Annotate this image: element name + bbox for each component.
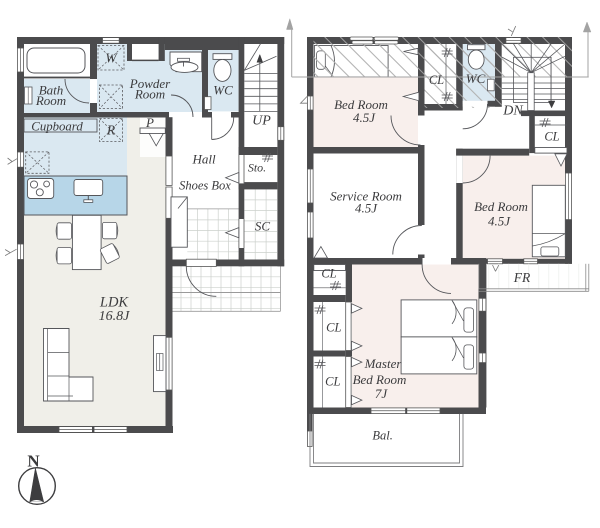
svg-text:Master: Master — [364, 356, 403, 371]
svg-text:P: P — [145, 115, 154, 130]
svg-text:UP: UP — [252, 114, 271, 129]
svg-text:Room: Room — [134, 87, 165, 102]
svg-text:Cupboard: Cupboard — [31, 120, 83, 134]
svg-text:CL: CL — [429, 73, 444, 87]
svg-text:WC: WC — [466, 71, 486, 86]
svg-text:CL: CL — [544, 130, 559, 144]
svg-text:Sto.: Sto. — [248, 161, 266, 175]
svg-text:7J: 7J — [375, 386, 389, 401]
svg-text:Bed Room: Bed Room — [474, 199, 528, 214]
svg-text:4.5J: 4.5J — [353, 110, 376, 125]
svg-text:CL: CL — [321, 267, 336, 281]
svg-text:W: W — [105, 50, 118, 65]
svg-text:4.5J: 4.5J — [488, 214, 511, 229]
svg-text:Shoes Box: Shoes Box — [179, 179, 231, 193]
svg-text:4.5J: 4.5J — [355, 201, 378, 216]
svg-text:16.8J: 16.8J — [99, 309, 131, 324]
svg-text:CL: CL — [325, 375, 340, 389]
svg-text:Hall: Hall — [191, 152, 216, 167]
svg-text:N: N — [27, 452, 40, 471]
svg-text:Bed Room: Bed Room — [353, 372, 407, 387]
svg-text:Bal.: Bal. — [372, 429, 392, 443]
svg-text:DN: DN — [502, 104, 523, 119]
svg-text:Room: Room — [35, 93, 66, 108]
svg-text:R: R — [106, 123, 116, 138]
svg-text:CL: CL — [326, 321, 341, 335]
svg-text:SC: SC — [255, 219, 271, 234]
svg-text:FR: FR — [513, 270, 531, 285]
svg-text:WC: WC — [213, 83, 233, 98]
